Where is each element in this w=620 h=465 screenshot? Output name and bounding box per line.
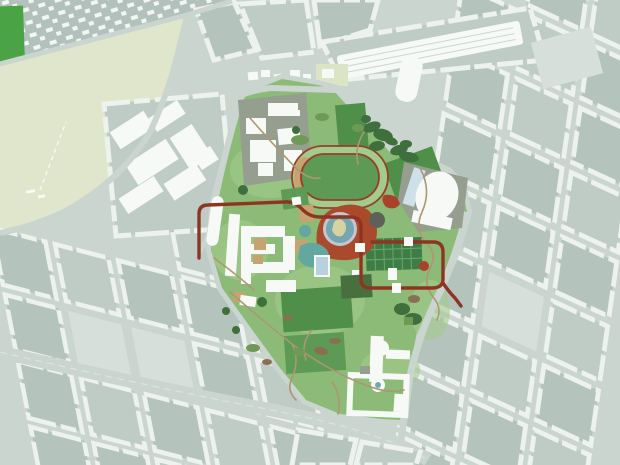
route-crossing: [404, 237, 413, 246]
swimming-pool: [315, 256, 329, 276]
skate-bowl: [299, 225, 311, 237]
bright-green-parcel: [0, 6, 25, 63]
route-crossing: [355, 243, 365, 252]
route-crossing: [392, 283, 401, 293]
red-garden-bed: [419, 261, 429, 271]
pavilion: [388, 268, 397, 280]
route-crossing: [291, 196, 301, 205]
round-plaza: [369, 212, 385, 228]
tree: [292, 126, 300, 134]
map-canvas: [0, 0, 620, 465]
map-figure: [0, 0, 620, 465]
